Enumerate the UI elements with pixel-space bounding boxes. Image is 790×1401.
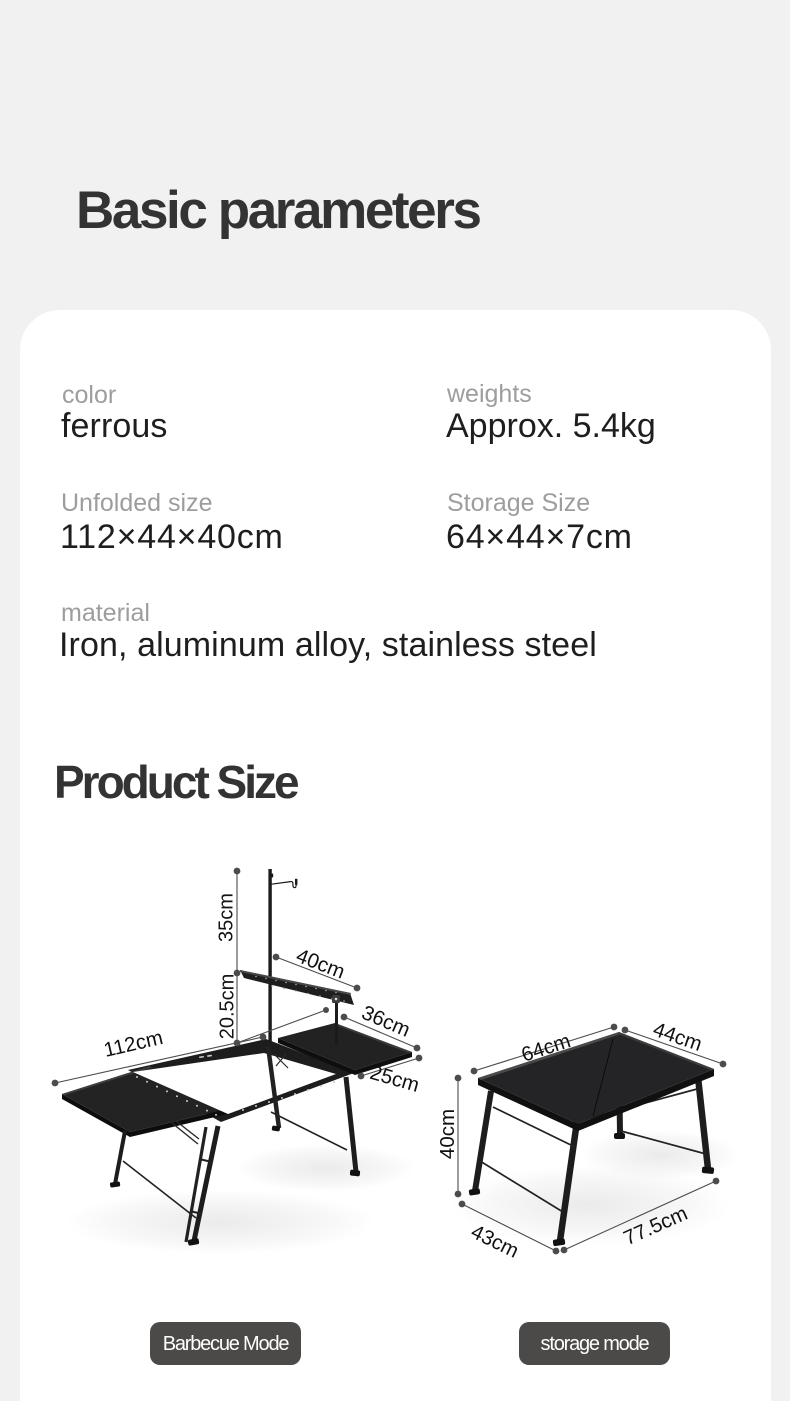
svg-text:112cm: 112cm xyxy=(102,1026,166,1062)
svg-text:25cm: 25cm xyxy=(367,1061,422,1097)
svg-text:35cm: 35cm xyxy=(216,893,238,942)
svg-text:40cm: 40cm xyxy=(293,944,348,983)
svg-text:40cm: 40cm xyxy=(436,1109,459,1159)
svg-text:20.5cm: 20.5cm xyxy=(217,974,239,1040)
